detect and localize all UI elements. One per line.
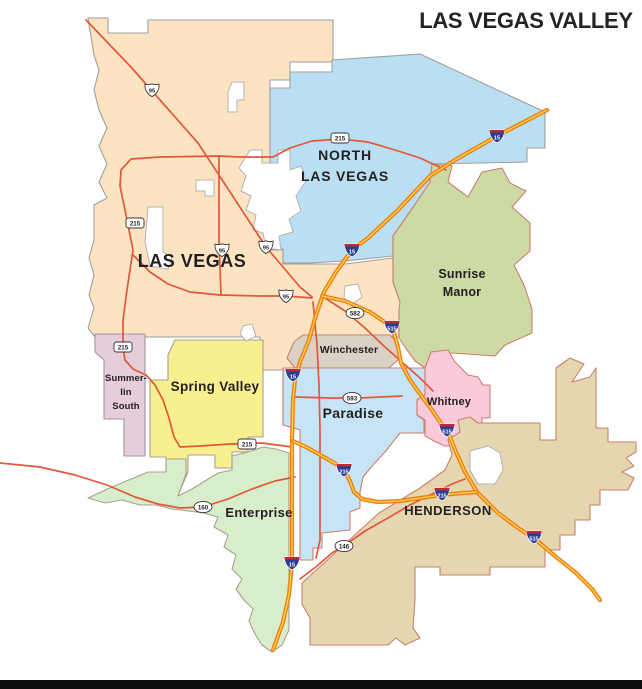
region-label-spring-valley: Spring Valley bbox=[171, 379, 260, 394]
shield-number: 15 bbox=[349, 249, 355, 255]
shield-number: 146 bbox=[339, 543, 350, 550]
shield-rect-215-7: 215 bbox=[238, 439, 256, 449]
shield-number: 215 bbox=[118, 344, 129, 351]
region-label-henderson: HENDERSON bbox=[404, 503, 492, 518]
region-label-winchester: Winchester bbox=[320, 344, 379, 356]
region-label-enterprise: Enterprise bbox=[225, 505, 292, 520]
map-title: LAS VEGAS VALLEY bbox=[419, 8, 633, 33]
shield-rect-215-6: 215 bbox=[114, 342, 132, 352]
shield-rect-215-5: 215 bbox=[331, 133, 349, 143]
shield-number: 515 bbox=[442, 429, 451, 435]
shield-oval-593-9: 593 bbox=[343, 392, 361, 403]
shield-number: 215 bbox=[335, 135, 346, 142]
shield-number: 95 bbox=[149, 88, 156, 94]
region-label-whitney: Whitney bbox=[427, 396, 472, 408]
footer-bar bbox=[0, 680, 642, 689]
shield-rect-215-4: 215 bbox=[126, 218, 144, 228]
hole-6 bbox=[470, 446, 503, 484]
shield-number: 15 bbox=[290, 374, 296, 380]
shield-number: 515 bbox=[387, 326, 396, 332]
map-canvas: 9595959521521521521558259316014615151515… bbox=[0, 0, 642, 689]
shield-number: 582 bbox=[350, 310, 361, 317]
shield-number: 95 bbox=[283, 294, 290, 300]
shield-number: 515 bbox=[529, 536, 538, 542]
shield-number: 15 bbox=[494, 135, 500, 141]
las-vegas-valley-map-page: 9595959521521521521558259316014615151515… bbox=[0, 0, 642, 689]
shield-number: 215 bbox=[437, 493, 446, 499]
shield-number: 95 bbox=[263, 245, 270, 251]
shield-number: 215 bbox=[242, 441, 253, 448]
region-label-las-vegas: LAS VEGAS bbox=[138, 251, 247, 271]
region-label-paradise: Paradise bbox=[323, 405, 384, 421]
shield-number: 215 bbox=[339, 469, 348, 475]
shield-number: 160 bbox=[198, 504, 209, 511]
shield-number: 215 bbox=[130, 220, 141, 227]
shield-oval-160-10: 160 bbox=[194, 501, 212, 512]
shield-number: 593 bbox=[347, 395, 358, 402]
shield-oval-146-11: 146 bbox=[335, 540, 353, 551]
shield-oval-582-8: 582 bbox=[346, 307, 364, 318]
shield-number: 15 bbox=[289, 562, 295, 568]
